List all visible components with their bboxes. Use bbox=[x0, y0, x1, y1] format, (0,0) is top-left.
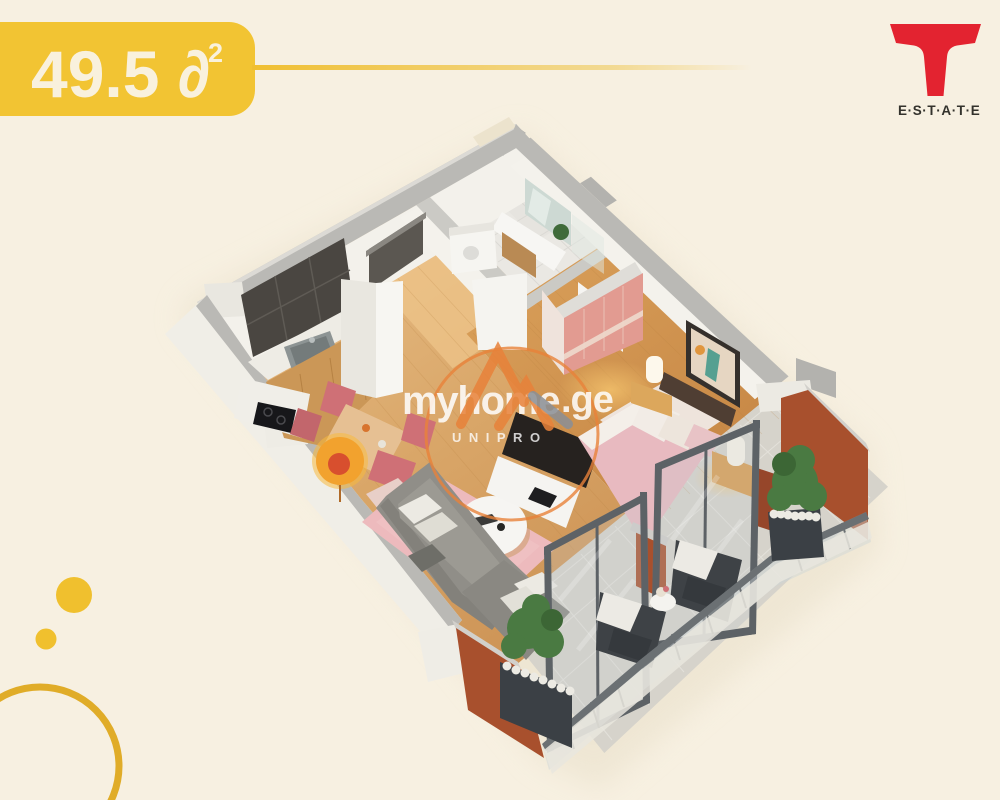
svg-text:.ge: .ge bbox=[561, 379, 613, 421]
svg-text:49.5 ∂: 49.5 ∂ bbox=[31, 37, 210, 111]
svg-text:E·S·T·A·T·E: E·S·T·A·T·E bbox=[898, 103, 980, 118]
svg-text:2: 2 bbox=[208, 38, 223, 68]
svg-text:UNIPRO: UNIPRO bbox=[452, 430, 548, 445]
